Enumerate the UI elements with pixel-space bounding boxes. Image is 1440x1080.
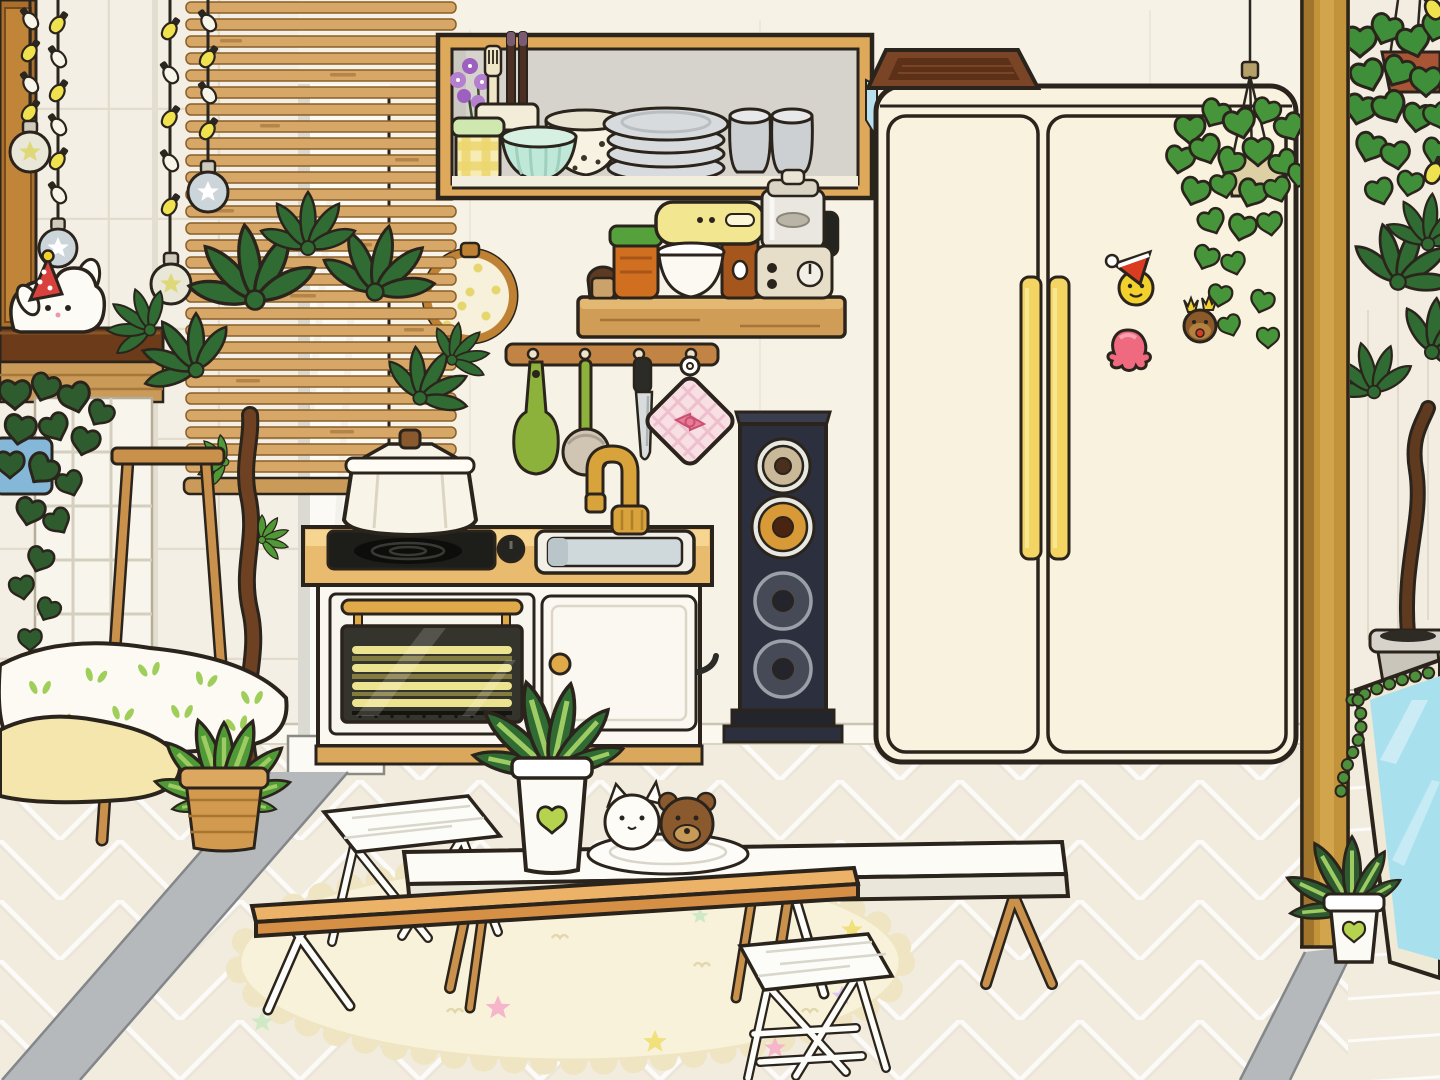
sink[interactable]: [536, 531, 694, 573]
bear-cookie[interactable]: [659, 793, 715, 850]
appliance-shelf[interactable]: [578, 297, 845, 337]
game-screen: {}: [0, 0, 1440, 1080]
dish-shelf[interactable]: [438, 32, 872, 198]
stand-mixer[interactable]: [656, 202, 764, 298]
wood-tray[interactable]: [868, 50, 1038, 88]
kitchen-scene: {}: [0, 0, 1440, 1080]
gingham-jar[interactable]: [452, 118, 504, 184]
cooktop[interactable]: [328, 531, 524, 569]
plate-stack[interactable]: [604, 108, 728, 181]
wood-beam: [1300, 0, 1350, 948]
tower-speaker[interactable]: [724, 412, 842, 742]
oven[interactable]: [330, 594, 534, 734]
